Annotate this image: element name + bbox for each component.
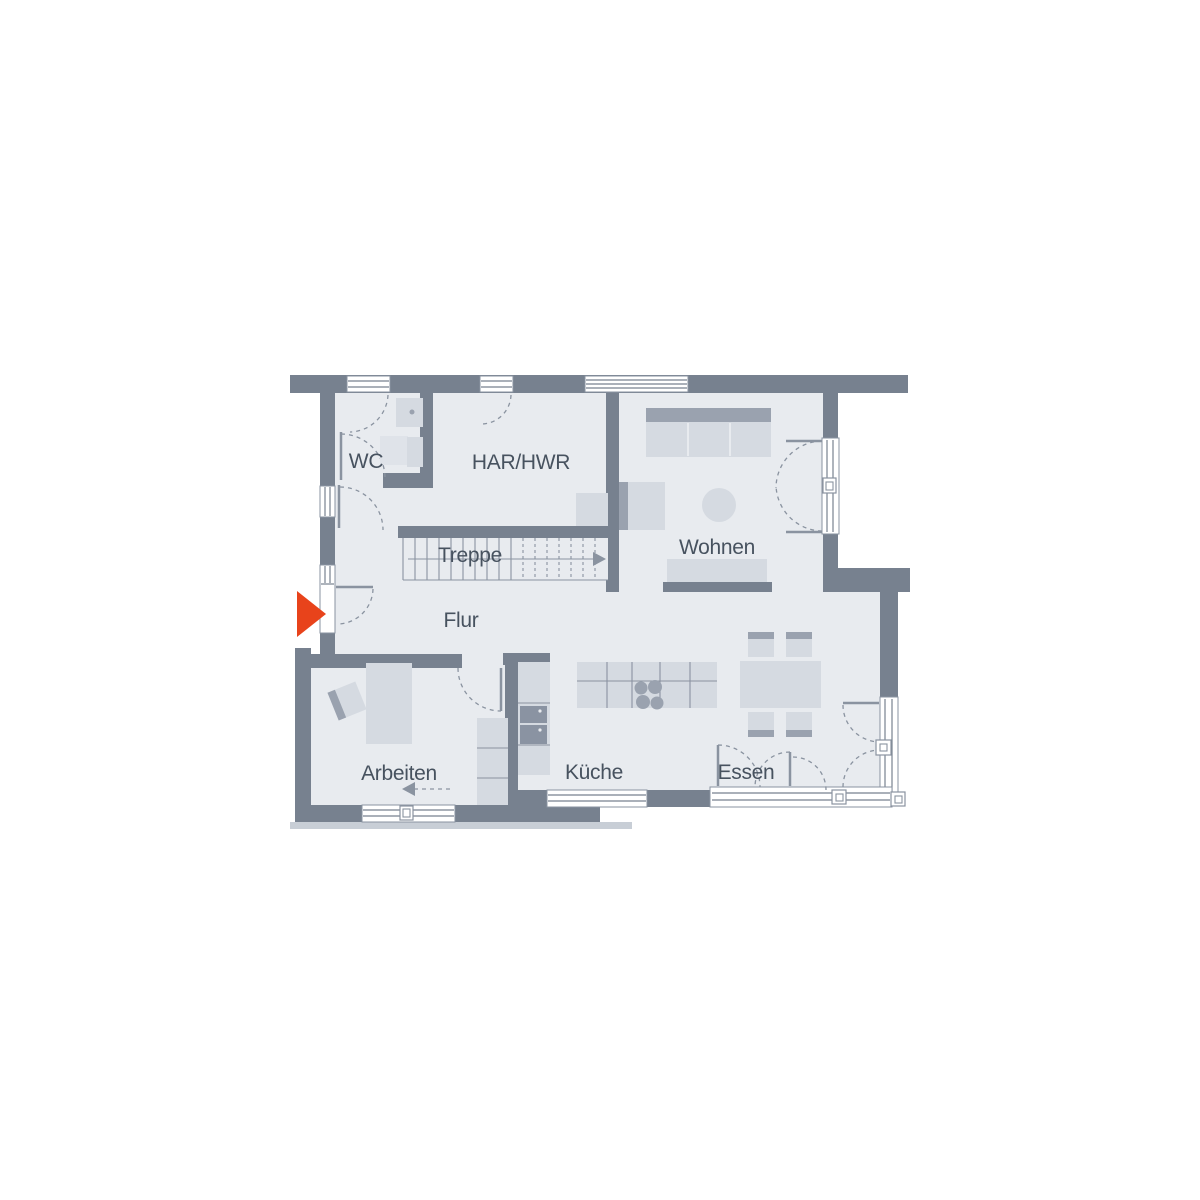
wc-toilet [396, 398, 423, 427]
door-handle-icon [823, 478, 836, 493]
window-wohnen [585, 376, 688, 392]
room-label-essen: Essen [718, 761, 775, 784]
wc-sink [380, 436, 423, 467]
wall-divider-wohnen-essen [663, 582, 772, 592]
hwr-appliance [576, 493, 608, 526]
door-handle-icon [832, 790, 846, 804]
wall-wohnen-east-bottom [823, 532, 838, 568]
room-label-flur: Flur [444, 609, 479, 632]
exterior-shadow [290, 822, 632, 829]
door-handle-icon [891, 792, 905, 806]
room-label-kueche: Küche [565, 761, 623, 784]
room-label-treppe: Treppe [438, 544, 502, 567]
desk [366, 663, 412, 744]
wall-wc-south [383, 473, 433, 488]
window-har [480, 376, 513, 392]
wall-right-mid [823, 568, 910, 592]
wall-wohnen-east-top [823, 393, 838, 440]
sideboard [667, 559, 767, 582]
wall-stairs-north [398, 526, 608, 538]
staircase [403, 538, 608, 580]
coffee-table [702, 488, 736, 522]
window-handle-icon [400, 806, 413, 820]
wall-south-kueche-left [518, 790, 547, 807]
dining-table [740, 661, 821, 708]
kitchen-tall-cabinets [518, 662, 550, 775]
wall-west-upper [320, 393, 335, 487]
room-label-wc: WC [349, 450, 384, 473]
wall-south-kueche-right [647, 790, 710, 807]
window-kueche [547, 790, 647, 807]
armchair [619, 482, 665, 530]
floorplan-drawing: WC HAR/HWR Treppe Wohnen Flur Arbeiten K… [0, 0, 1200, 1200]
wall-west-mid [320, 517, 335, 567]
sofa [646, 408, 771, 457]
wardrobe [477, 718, 508, 805]
room-label-wohnen: Wohnen [679, 536, 755, 559]
oven-icon [520, 706, 547, 744]
window-arbeiten [362, 805, 455, 822]
wall-south-arbeiten-left [295, 805, 362, 822]
room-label-arbeiten: Arbeiten [361, 762, 437, 785]
wall-east [880, 592, 898, 697]
kitchen-island [577, 662, 717, 710]
door-handle-icon [876, 740, 891, 755]
window-wc [347, 376, 390, 392]
wall-arbeiten-west [295, 648, 311, 822]
room-label-har-hwr: HAR/HWR [472, 451, 570, 474]
wall-south-stub [518, 805, 600, 822]
floorplan-canvas: WC HAR/HWR Treppe Wohnen Flur Arbeiten K… [0, 0, 1200, 1200]
window-flur-west [320, 486, 335, 517]
